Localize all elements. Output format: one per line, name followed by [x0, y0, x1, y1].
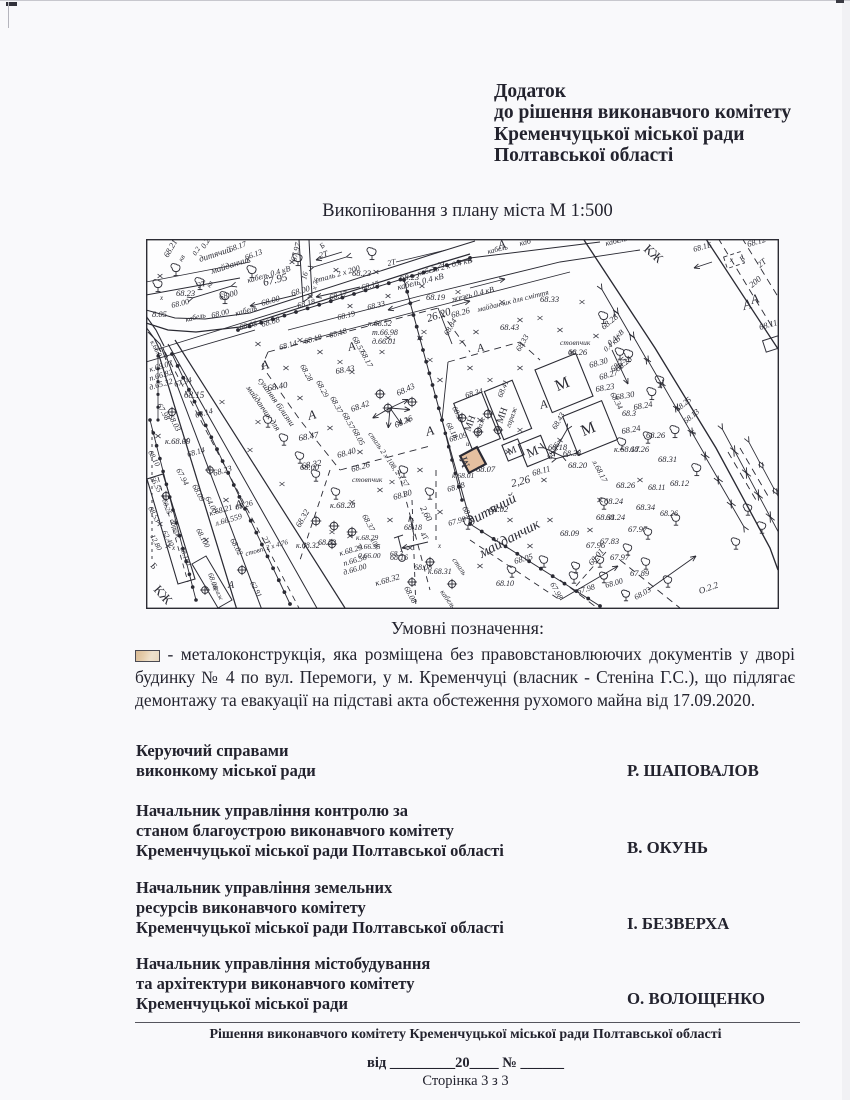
- svg-text:68.09: 68.09: [560, 528, 580, 538]
- svg-text:к.68.31: к.68.31: [428, 567, 452, 576]
- svg-text:68.52: 68.52: [318, 538, 336, 547]
- svg-text:68.23: 68.23: [176, 288, 195, 298]
- svg-text:68.26: 68.26: [646, 430, 666, 440]
- svg-text:68.26: 68.26: [616, 480, 636, 490]
- svg-text:68.10: 68.10: [496, 579, 514, 588]
- svg-text:стовпчик: стовпчик: [352, 475, 383, 484]
- svg-text:68.07: 68.07: [476, 464, 496, 474]
- svg-text:д.66.95: д.66.95: [358, 542, 381, 551]
- svg-text:68.15: 68.15: [184, 390, 205, 400]
- svg-text:8.05: 8.05: [152, 309, 167, 319]
- svg-text:А: А: [227, 580, 235, 591]
- svg-text:68.43: 68.43: [500, 322, 519, 332]
- svg-text:68.26: 68.26: [630, 444, 650, 454]
- svg-text:и: и: [466, 440, 470, 448]
- svg-text:к.68.01: к.68.01: [452, 471, 474, 480]
- svg-text:к.68.32: к.68.32: [296, 541, 320, 550]
- svg-text:к.68.29: к.68.29: [356, 533, 379, 542]
- svg-text:68.19: 68.19: [426, 292, 446, 302]
- svg-text:67.97: 67.97: [628, 524, 648, 534]
- svg-text:68.11: 68.11: [648, 483, 665, 492]
- svg-text:0.66.00: 0.66.00: [358, 551, 381, 560]
- svg-text:68.26: 68.26: [660, 509, 678, 518]
- svg-text:68.34: 68.34: [636, 502, 656, 512]
- svg-text:к.68.52: к.68.52: [368, 319, 392, 328]
- svg-text:стовпчик: стовпчик: [560, 338, 591, 347]
- svg-text:д.66.01: д.66.01: [372, 337, 396, 346]
- svg-text:68.33: 68.33: [540, 294, 559, 304]
- svg-text:68.31: 68.31: [658, 454, 677, 464]
- svg-text:68.18: 68.18: [548, 442, 568, 452]
- svg-text:68.31: 68.31: [596, 512, 615, 522]
- svg-text:т.66.98: т.66.98: [372, 328, 398, 337]
- svg-text:68.20: 68.20: [568, 460, 588, 470]
- svg-text:68.12: 68.12: [670, 478, 690, 488]
